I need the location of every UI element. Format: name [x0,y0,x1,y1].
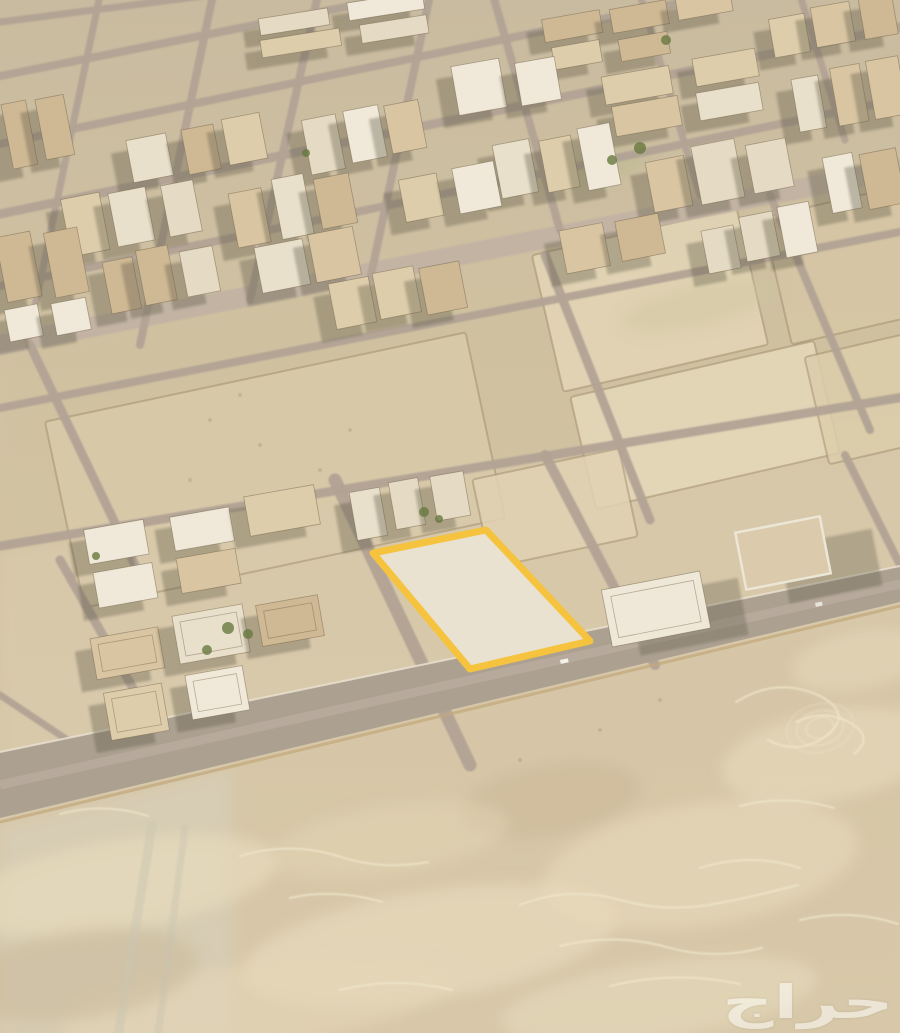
haraj-watermark: حراج [722,975,894,1029]
satellite-map-view: حراج [0,0,900,1033]
map-image [0,0,900,1033]
